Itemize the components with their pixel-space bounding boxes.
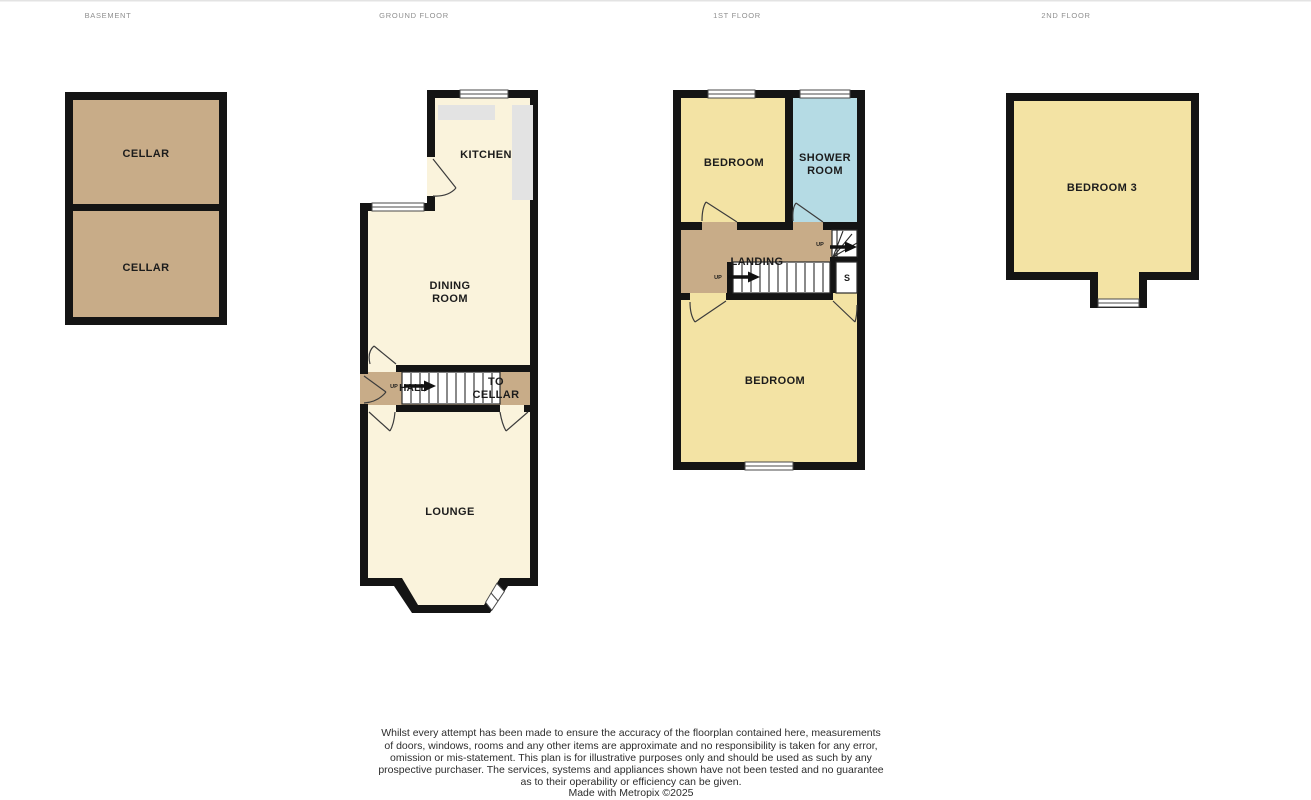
label-bedroom3: BEDROOM 3	[1067, 182, 1137, 194]
winder-staircase	[832, 230, 857, 257]
label-bedroom-back: BEDROOM	[745, 375, 805, 387]
footer-line: omission or mis-statement. This plan is …	[390, 752, 873, 764]
window	[372, 203, 424, 211]
floor-ground: KITCHEN DINING ROOM UP HALL TO CELLAR LO…	[360, 90, 538, 613]
window	[800, 90, 850, 98]
label-winder-up: UP	[816, 242, 824, 248]
wall-segment	[681, 293, 690, 300]
label-cellar-upper: CELLAR	[122, 148, 169, 160]
header-ground-floor: GROUND FLOOR	[379, 11, 449, 20]
floor-second: BEDROOM 3	[1006, 93, 1199, 308]
wall-segment	[785, 98, 793, 222]
kitchen-door-opening	[427, 157, 435, 196]
footer-line: of doors, windows, rooms and any other i…	[384, 740, 877, 752]
label-shower-line1: SHOWER	[799, 152, 851, 164]
label-kitchen: KITCHEN	[460, 149, 512, 161]
room-kitchen-dining-lounge	[368, 98, 530, 605]
wall-segment	[726, 293, 833, 300]
header-first-floor: 1ST FLOOR	[713, 11, 761, 20]
window	[1098, 299, 1139, 307]
wall-segment	[396, 365, 530, 372]
label-shower-line2: ROOM	[807, 165, 843, 177]
wall-segment	[524, 405, 530, 412]
kitchen-counter	[438, 105, 495, 120]
label-to-cellar-line1: TO	[488, 376, 504, 388]
wall-segment	[830, 262, 836, 293]
floor-first: BEDROOM SHOWER ROOM LANDING UP UP S BEDR…	[673, 90, 865, 470]
label-landing: LANDING	[731, 256, 784, 268]
room-bedroom3-bay	[1098, 272, 1139, 299]
window	[745, 462, 793, 470]
label-store-cupboard: S	[844, 273, 850, 283]
label-dining-line1: DINING	[430, 280, 471, 292]
floorplan-page: BASEMENT GROUND FLOOR 1ST FLOOR 2ND FLOO…	[0, 0, 1311, 800]
wall-segment	[396, 405, 500, 412]
label-cellar-lower: CELLAR	[122, 262, 169, 274]
kitchen-counter	[512, 105, 533, 200]
window	[708, 90, 755, 98]
label-lounge: LOUNGE	[425, 506, 474, 518]
label-landing-up: UP	[714, 275, 722, 281]
label-hall-up: UP	[390, 384, 398, 390]
footer-line: Whilst every attempt has been made to en…	[381, 727, 881, 739]
label-dining-line2: ROOM	[432, 293, 468, 305]
wall-segment	[830, 257, 857, 262]
door-opening	[702, 222, 737, 230]
floorplan-svg: BASEMENT GROUND FLOOR 1ST FLOOR 2ND FLOO…	[0, 0, 1311, 800]
top-border	[0, 0, 1311, 2]
footer-credit: Made with Metropix ©2025	[568, 787, 693, 799]
floor-basement: CELLAR CELLAR	[65, 92, 227, 325]
footer-line: prospective purchaser. The services, sys…	[378, 764, 883, 776]
label-to-cellar-line2: CELLAR	[472, 389, 519, 401]
header-basement: BASEMENT	[85, 11, 132, 20]
footer-disclaimer: Whilst every attempt has been made to en…	[378, 727, 883, 799]
label-bedroom-front: BEDROOM	[704, 157, 764, 169]
header-second-floor: 2ND FLOOR	[1041, 11, 1090, 20]
door-opening	[793, 222, 823, 230]
window	[460, 90, 508, 98]
